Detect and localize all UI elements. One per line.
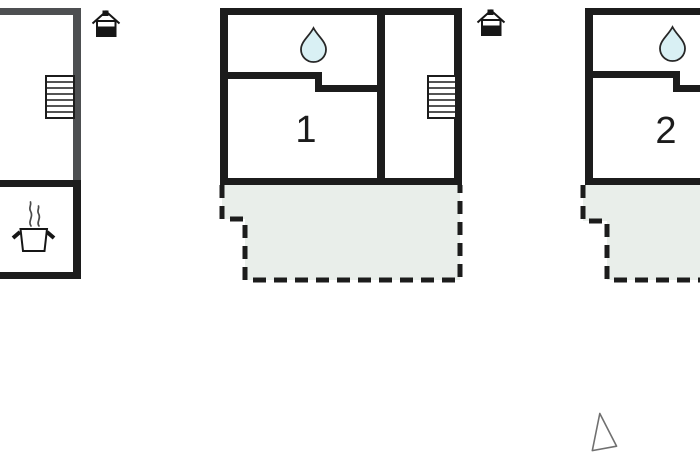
wall-segment — [585, 178, 700, 185]
wall-segment — [585, 8, 700, 15]
wall-segment — [0, 272, 81, 279]
steam-line — [30, 202, 32, 226]
wall-segment — [585, 8, 593, 185]
right-unit-walls — [585, 8, 700, 185]
floorplan-drawing: 1 2 — [0, 0, 700, 459]
room-number-2: 2 — [655, 110, 676, 152]
wall-segment — [220, 8, 462, 15]
house-body-fill — [97, 27, 116, 37]
wall-segment — [592, 71, 680, 78]
floorplan-canvas: 1 2 — [0, 0, 700, 459]
steam-line — [38, 206, 40, 226]
wall-segment — [220, 178, 462, 185]
wall-segment — [227, 72, 322, 79]
cooking-pot-icon — [13, 202, 54, 251]
middle-unit-walls — [220, 8, 462, 185]
terrace-fill — [583, 185, 700, 280]
floorplan-left-unit — [0, 8, 81, 279]
wall-segment — [673, 85, 700, 92]
wall-segment — [377, 8, 385, 185]
wall-segment — [0, 8, 80, 15]
terrace-area — [583, 185, 700, 280]
staircase-icon — [46, 76, 74, 118]
water-drop-icon — [660, 27, 685, 61]
house-body-fill — [482, 26, 501, 36]
floorplan-middle-unit: 1 — [220, 8, 462, 280]
staircase-icon — [428, 76, 456, 118]
pot-handle-left — [13, 232, 20, 238]
water-drop-icon — [301, 28, 326, 62]
wall-segment — [73, 182, 81, 279]
floorplan-right-unit: 2 — [583, 8, 700, 280]
pot-handle-right — [47, 232, 54, 238]
house-level-icon — [478, 10, 505, 36]
terrace-fill — [222, 185, 460, 280]
wall-segment — [220, 8, 228, 185]
triangle-pointer-icon — [592, 414, 616, 451]
room-number-1: 1 — [295, 109, 316, 151]
house-level-icon — [93, 11, 120, 37]
pot-body — [21, 229, 48, 251]
wall-segment — [0, 180, 81, 187]
terrace-area — [222, 185, 460, 280]
wall-segment — [315, 85, 385, 92]
